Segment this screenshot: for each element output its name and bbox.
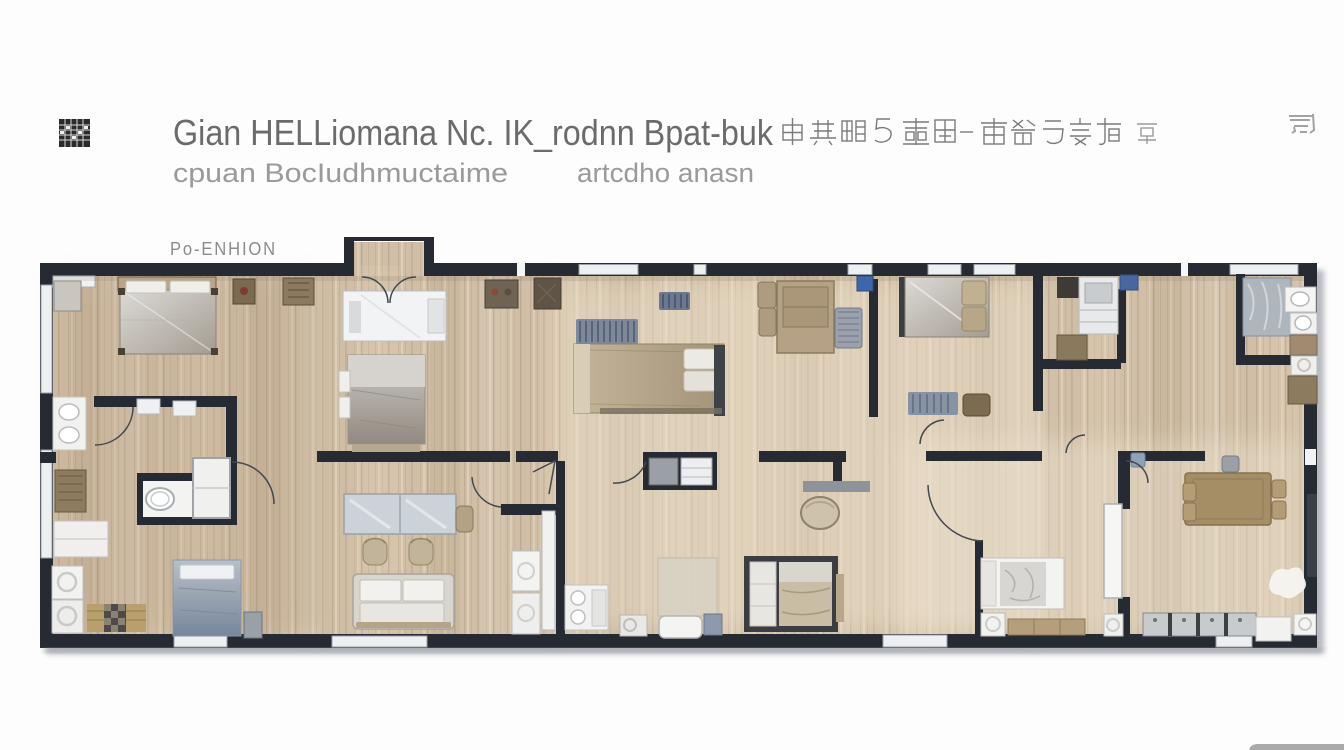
svg-text:Gian HELLiomana Nc. IK_rodnn B: Gian HELLiomana Nc. IK_rodnn Bpat-buk (173, 112, 774, 153)
svg-text:artcdho anasn: artcdho anasn (577, 158, 754, 188)
svg-text:Po-ENHION: Po-ENHION (170, 239, 277, 259)
svg-text:cpuan BocIudhmuctaime: cpuan BocIudhmuctaime (173, 158, 508, 188)
